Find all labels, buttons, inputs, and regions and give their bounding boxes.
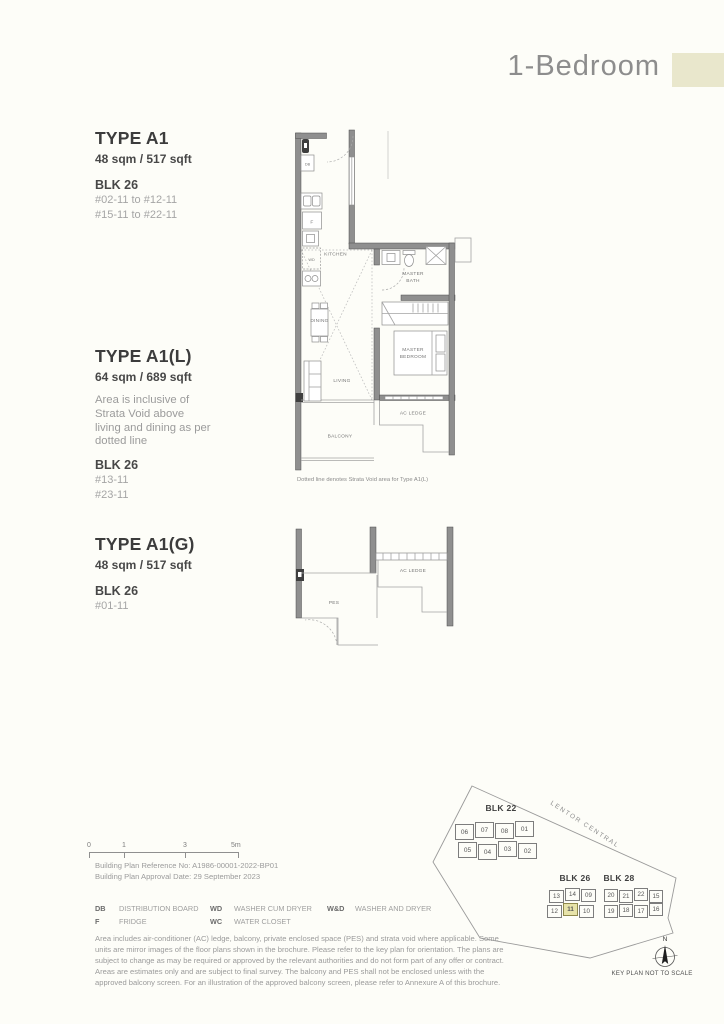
- pillow: [436, 354, 445, 371]
- bath-fixtures: [382, 247, 446, 267]
- legend-abbr: WC: [210, 917, 234, 928]
- legend-label: DISTRIBUTION BOARD: [119, 904, 198, 913]
- keyplan-unit-12: 12: [547, 905, 562, 918]
- building-plan-approval: Building Plan Approval Date: 29 Septembe…: [95, 872, 278, 883]
- scale-label: 3: [183, 842, 187, 849]
- master-bath-label: MASTER: [402, 271, 424, 277]
- keyplan-unit-19: 19: [604, 905, 618, 918]
- category-color-swatch: [672, 53, 724, 87]
- type-area: 48 sqm / 517 sqft: [95, 152, 285, 166]
- db-label: DB: [305, 162, 311, 166]
- keyplan-block-label: BLK 22: [468, 803, 534, 813]
- type-block-no: BLK 26: [95, 178, 285, 192]
- louvre-band: [376, 553, 447, 560]
- toilet-bowl: [405, 255, 414, 267]
- keyplan-unit-01: 01: [515, 821, 534, 837]
- plan-a1g-walls: [296, 527, 453, 626]
- legend-column: WDWASHER CUM DRYER WCWATER CLOSET: [210, 902, 312, 927]
- plan-a1-walls: [296, 130, 456, 470]
- type-name: TYPE A1(G): [95, 534, 285, 555]
- scale-tick: [238, 852, 239, 858]
- gate-swing: [305, 620, 337, 645]
- dining-chair: [312, 337, 319, 343]
- type-block-no: BLK 26: [95, 458, 285, 472]
- type-units: #13-11 #23-11: [95, 473, 285, 502]
- pillow: [436, 335, 445, 352]
- bath-door-swing: [382, 268, 404, 290]
- kitchen-label: KITCHEN: [324, 252, 347, 258]
- type-units: #02-11 to #12-11 #15-11 to #22-11: [95, 193, 285, 222]
- ac-ledge-label: AC LEDGE: [400, 411, 426, 417]
- strata-void-caption: Dotted line denotes Strata Void area for…: [297, 477, 428, 483]
- keyplan-unit-03: 03: [498, 841, 517, 857]
- keyplan-unit-row: 05040302: [458, 842, 537, 858]
- type-area: 48 sqm / 517 sqft: [95, 558, 285, 572]
- building-plan-reference: Building Plan Reference No: A1986-00001-…: [95, 861, 278, 872]
- keyplan-unit-08: 08: [495, 823, 514, 839]
- unit-range: #15-11 to #22-11: [95, 208, 285, 222]
- ac-ledge-outline: [380, 401, 450, 452]
- unit-range: #13-11: [95, 473, 285, 487]
- scale-label: 1: [122, 842, 126, 849]
- keyplan-unit-20: 20: [604, 889, 618, 902]
- keyplan-unit-row: 131409: [549, 889, 596, 902]
- building-plan-info: Building Plan Reference No: A1986-00001-…: [95, 861, 278, 882]
- keyplan-unit-06: 06: [455, 824, 474, 840]
- keyplan-unit-row: 06070801: [455, 822, 534, 838]
- balcony-door-post: [296, 393, 304, 402]
- keyplan-block-label: BLK 28: [586, 873, 652, 883]
- master-bedroom-label: BEDROOM: [400, 354, 427, 360]
- dining-label: DINING: [310, 318, 328, 324]
- legend-abbr: DB: [95, 904, 119, 915]
- unit-range: #23-11: [95, 488, 285, 502]
- scale-tick: [89, 852, 90, 858]
- scale-tick: [124, 852, 125, 858]
- legend-abbr: W&D: [327, 904, 355, 915]
- legend-label: FRIDGE: [119, 917, 147, 926]
- keyplan-unit-17: 17: [634, 905, 648, 918]
- scale-bar-line: [89, 852, 238, 853]
- living-label: LIVING: [333, 378, 350, 384]
- type-area: 64 sqm / 689 sqft: [95, 370, 285, 384]
- toilet-cistern: [403, 251, 415, 255]
- pes-label: PES: [329, 600, 339, 606]
- keyplan-unit-04: 04: [478, 844, 497, 860]
- keyplan-unit-row: 19181716: [604, 904, 663, 917]
- dining-chair: [312, 303, 319, 309]
- legend-label: WATER CLOSET: [234, 917, 291, 926]
- keyplan-unit-05: 05: [458, 842, 477, 858]
- page-title: 1-Bedroom: [420, 50, 660, 83]
- scale-label: 0: [87, 842, 91, 849]
- keyplan-unit-row: 121110: [547, 904, 594, 917]
- keyplan-unit-row: 20212215: [604, 889, 663, 902]
- keyplan-unit-22: 22: [634, 888, 648, 901]
- legend-abbr: F: [95, 917, 119, 928]
- keyplan-unit-10: 10: [579, 905, 594, 918]
- dining-chair: [321, 337, 328, 343]
- north-label: N: [652, 936, 678, 943]
- master-bedroom-label: MASTER: [402, 347, 424, 353]
- type-a1-info: TYPE A1 48 sqm / 517 sqft BLK 26 #02-11 …: [95, 128, 285, 222]
- legend-abbr: WD: [210, 904, 234, 915]
- type-block-no: BLK 26: [95, 584, 285, 598]
- keyplan-unit-16: 16: [649, 903, 663, 916]
- scale-bar: 0 1 3 5m: [88, 842, 248, 860]
- brochure-page: 1-Bedroom TYPE A1 48 sqm / 517 sqft BLK …: [0, 0, 724, 1024]
- key-plan-caption: KEY PLAN NOT TO SCALE: [600, 970, 704, 977]
- keyplan-unit-15: 15: [649, 890, 663, 903]
- key-plan: LENTOR CENTRAL BLK 220607080105040302BLK…: [428, 772, 724, 972]
- dining-chair: [321, 303, 328, 309]
- keyplan-unit-21: 21: [619, 890, 633, 903]
- type-name: TYPE A1: [95, 128, 285, 149]
- unit-range: #01-11: [95, 599, 285, 613]
- legend-label: WASHER AND DRYER: [355, 904, 431, 913]
- legend-column: DBDISTRIBUTION BOARD FFRIDGE: [95, 902, 198, 927]
- living-dining-fixtures: [304, 303, 328, 401]
- keyplan-unit-14: 14: [565, 888, 580, 901]
- type-name: TYPE A1(L): [95, 346, 285, 367]
- floor-plan-a1: DB F WD KITCHEN MASTER BATH DINING MASTE…: [285, 123, 475, 478]
- type-a1l-info: TYPE A1(L) 64 sqm / 689 sqft Area is inc…: [95, 346, 285, 502]
- road-label: LENTOR CENTRAL: [549, 800, 621, 850]
- ac-ledge-label: AC LEDGE: [400, 568, 426, 574]
- legend-label: WASHER CUM DRYER: [234, 904, 312, 913]
- scale-tick: [185, 852, 186, 858]
- keyplan-unit-13: 13: [549, 890, 564, 903]
- unit-range: #02-11 to #12-11: [95, 193, 285, 207]
- master-bath-label: BATH: [406, 278, 420, 284]
- fridge-label: F: [310, 220, 313, 226]
- floor-plan-a1g: PES AC LEDGE: [285, 523, 475, 668]
- north-arrow-icon: [652, 944, 678, 970]
- type-a1g-info: TYPE A1(G) 48 sqm / 517 sqft BLK 26 #01-…: [95, 534, 285, 613]
- key-plan-boundary: LENTOR CENTRAL: [428, 772, 724, 972]
- balcony-label: BALCONY: [328, 434, 353, 440]
- keyplan-unit-02: 02: [518, 843, 537, 859]
- keyplan-unit-09: 09: [581, 889, 596, 902]
- bedroom-fixtures: [382, 302, 448, 375]
- keyplan-unit-07: 07: [475, 822, 494, 838]
- pes-boundary: [302, 618, 379, 645]
- scale-label: 5m: [231, 842, 241, 849]
- keyplan-unit-11: 11: [563, 903, 578, 916]
- legend-column: W&DWASHER AND DRYER: [327, 902, 431, 915]
- ac-ledge-outline: [378, 560, 447, 612]
- sofa: [304, 361, 321, 401]
- keyplan-unit-18: 18: [619, 904, 633, 917]
- wd-label: WD: [308, 258, 315, 262]
- type-note: Area is inclusive of Strata Void above l…: [95, 394, 213, 449]
- type-units: #01-11: [95, 599, 285, 613]
- exterior-ledge: [455, 238, 471, 262]
